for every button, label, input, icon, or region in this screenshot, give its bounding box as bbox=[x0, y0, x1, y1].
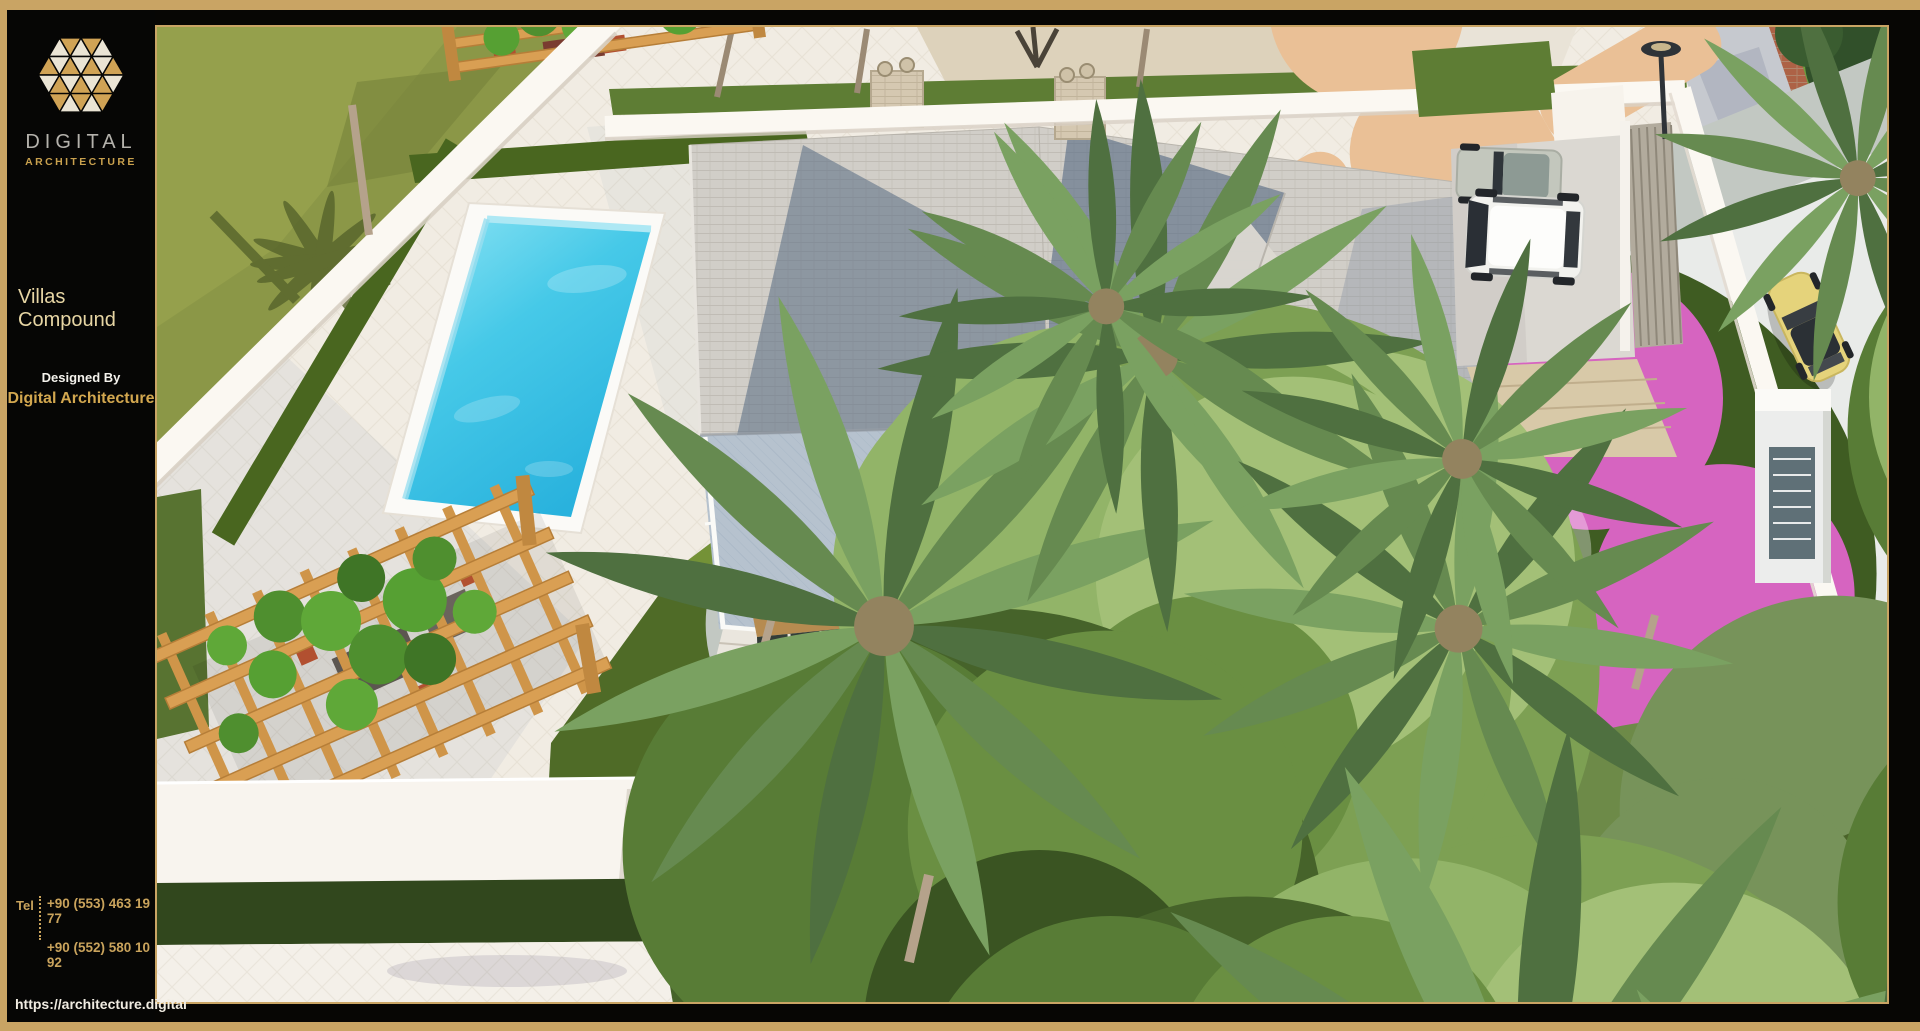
logo: DIGITAL ARCHITECTURE bbox=[7, 36, 155, 168]
logo-word-digital: DIGITAL bbox=[7, 131, 155, 154]
project-title: Villas Compound bbox=[18, 286, 155, 332]
utility-box bbox=[1755, 389, 1831, 583]
frame-gold-top bbox=[0, 0, 1920, 10]
logo-word-architecture: ARCHITECTURE bbox=[7, 156, 155, 168]
phone-number: +90 (553) 463 19 77 bbox=[47, 896, 155, 926]
frame-gold-bottom bbox=[0, 1022, 1920, 1031]
phone-block: Tel +90 (553) 463 19 77 +90 (552) 580 10… bbox=[16, 896, 155, 970]
designed-by-label: Designed By bbox=[7, 370, 155, 385]
designed-by-value: Digital Architecture bbox=[7, 390, 155, 408]
frame-gold-left bbox=[0, 0, 7, 1031]
tel-divider bbox=[39, 896, 41, 940]
hex-triangle-logo-icon bbox=[33, 36, 129, 116]
sidebar: DIGITAL ARCHITECTURE Villas Compound Des… bbox=[7, 10, 155, 1022]
website-url: https://architecture.digital bbox=[15, 996, 187, 1012]
aerial-render bbox=[157, 27, 1887, 1002]
tel-label: Tel bbox=[16, 898, 34, 913]
presentation-board: DIGITAL ARCHITECTURE Villas Compound Des… bbox=[0, 0, 1920, 1031]
phone-number: +90 (552) 580 10 92 bbox=[47, 940, 155, 970]
designed-by-block: Designed By Digital Architecture bbox=[7, 370, 155, 408]
